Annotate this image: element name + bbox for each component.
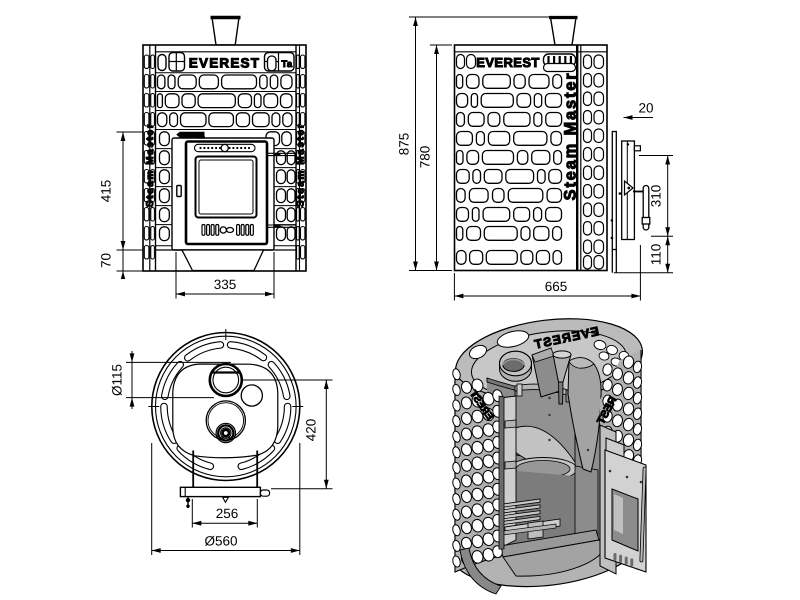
- svg-text:420: 420: [303, 419, 318, 442]
- svg-text:256: 256: [216, 506, 239, 521]
- svg-text:335: 335: [214, 277, 237, 292]
- svg-text:Steam Master: Steam Master: [561, 72, 579, 201]
- svg-text:EVEREST: EVEREST: [189, 56, 260, 71]
- svg-text:Steam Master: Steam Master: [296, 123, 307, 207]
- svg-text:665: 665: [545, 279, 568, 294]
- svg-text:70: 70: [99, 253, 114, 268]
- svg-text:Steam Master: Steam Master: [145, 123, 156, 207]
- svg-text:Ø115: Ø115: [110, 364, 125, 396]
- svg-text:Та: Та: [281, 59, 293, 70]
- svg-text:780: 780: [418, 146, 433, 169]
- svg-text:110: 110: [649, 244, 664, 266]
- svg-text:Ø560: Ø560: [204, 534, 237, 549]
- svg-text:415: 415: [99, 180, 114, 203]
- svg-text:310: 310: [649, 185, 664, 208]
- svg-text:20: 20: [638, 101, 653, 116]
- svg-text:EVEREST: EVEREST: [476, 55, 539, 70]
- svg-text:875: 875: [397, 133, 412, 156]
